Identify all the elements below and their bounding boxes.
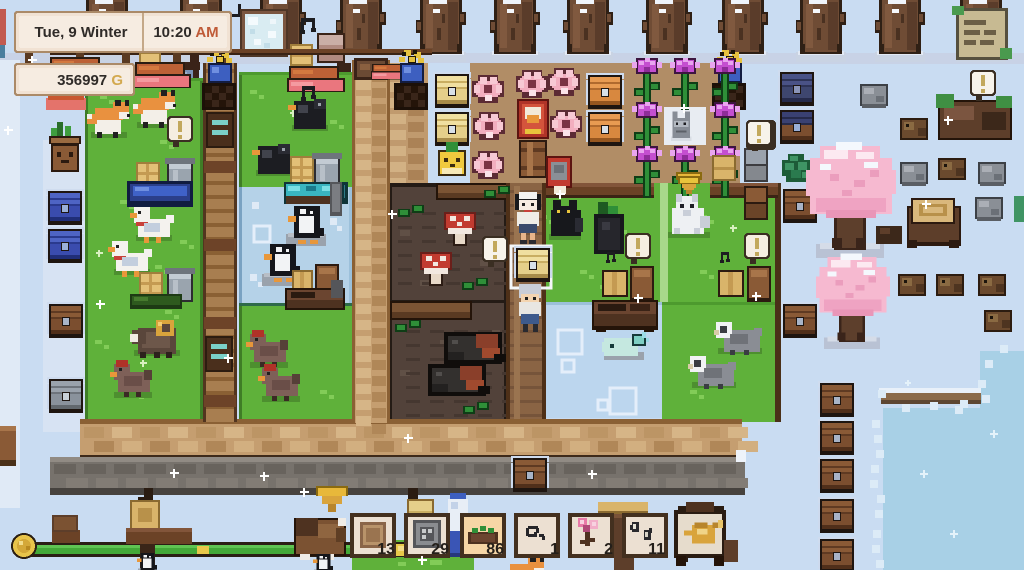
svg-text:Tue, 9 Winter: Tue, 9 Winter bbox=[35, 24, 128, 41]
svg-text:29: 29 bbox=[431, 541, 449, 558]
svg-text:10:20 AM: 10:20 AM bbox=[153, 24, 218, 41]
svg-text:2: 2 bbox=[604, 541, 613, 558]
svg-text:356997 G: 356997 G bbox=[57, 72, 123, 89]
svg-text:86: 86 bbox=[486, 541, 504, 558]
svg-text:13: 13 bbox=[377, 541, 395, 558]
svg-text:11: 11 bbox=[648, 541, 665, 558]
svg-text:1: 1 bbox=[550, 541, 559, 558]
